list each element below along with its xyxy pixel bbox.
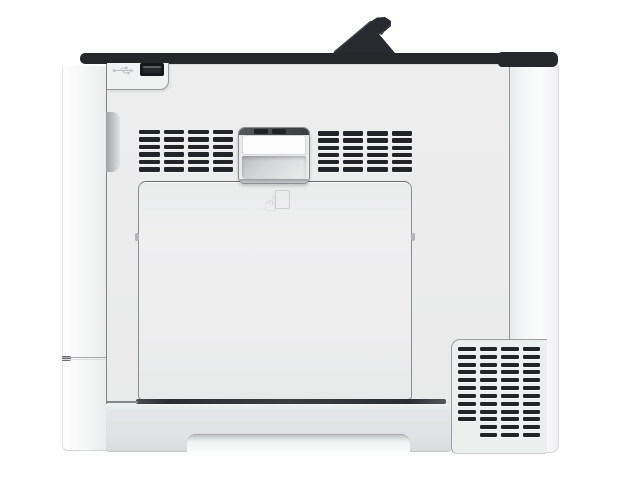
vent-slot	[188, 145, 209, 150]
vent-slot	[458, 378, 476, 382]
vent-slot	[523, 433, 541, 437]
vent-slot	[318, 131, 339, 136]
paper-stopper	[325, 12, 405, 57]
vent-slot	[523, 355, 541, 359]
usb-port-opening	[143, 66, 161, 73]
icon-door-outline	[275, 190, 290, 209]
handle-recess	[242, 156, 306, 179]
vent-slot	[458, 370, 476, 374]
vent-slot	[367, 138, 388, 143]
vent-slot	[501, 394, 519, 398]
vent-slot	[213, 152, 234, 157]
printer-product-photo: ☝	[0, 0, 640, 480]
vent-slot	[501, 378, 519, 382]
vent-slot	[164, 152, 185, 157]
vent-slot	[188, 167, 209, 172]
handle-lip	[240, 179, 308, 183]
vent-slot	[213, 130, 234, 135]
vent-slot	[213, 167, 234, 172]
vent-slot	[188, 152, 209, 157]
vent-slot	[458, 363, 476, 367]
vent-slot	[343, 160, 364, 165]
vent-slot	[392, 138, 413, 143]
vent-slot	[501, 433, 519, 437]
vent-slot	[164, 160, 185, 165]
door-grip-tab	[106, 112, 120, 172]
vent-slot	[501, 402, 519, 406]
vent-grille-top-right	[318, 130, 412, 173]
vent-slot	[188, 137, 209, 142]
vent-slot	[523, 370, 541, 374]
vent-slot	[480, 410, 498, 414]
door-bottom-seam-left	[106, 401, 138, 403]
left-panel-seam	[62, 356, 106, 361]
vent-slot	[139, 137, 160, 142]
vent-slot	[501, 417, 519, 421]
usb-port	[140, 63, 164, 76]
vent-slot	[501, 355, 519, 359]
vent-slot	[164, 167, 185, 172]
vent-slot	[318, 146, 339, 151]
vent-slot	[458, 386, 476, 390]
paper-drawer-grip	[187, 434, 410, 452]
vent-slot	[343, 146, 364, 151]
vent-slot	[343, 138, 364, 143]
vent-slot	[343, 153, 364, 158]
vent-slot	[523, 417, 541, 421]
door-hinge-left	[135, 233, 139, 241]
vent-slot	[139, 167, 160, 172]
vent-slot	[458, 417, 476, 421]
vent-slot	[480, 417, 498, 421]
right-body-seam	[509, 63, 510, 340]
vent-slot	[139, 130, 160, 135]
vent-slot	[164, 145, 185, 150]
vent-slot	[501, 410, 519, 414]
vent-slot	[501, 363, 519, 367]
vent-slot	[523, 363, 541, 367]
handle-latch-left	[254, 129, 268, 134]
vent-slot	[318, 153, 339, 158]
vent-slot	[188, 130, 209, 135]
vent-slot	[480, 363, 498, 367]
push-open-hand-icon: ☝	[265, 190, 293, 220]
vent-slot	[367, 146, 388, 151]
door-pull-handle	[238, 127, 310, 184]
vent-slot	[139, 160, 160, 165]
vent-slot	[213, 145, 234, 150]
vent-slot	[164, 130, 185, 135]
icon-hand-glyph: ☝	[264, 194, 277, 215]
door-hinge-right	[411, 233, 415, 241]
seam-highlight	[62, 359, 106, 360]
vent-slot	[458, 410, 476, 414]
vent-slot	[523, 402, 541, 406]
vent-slot	[367, 167, 388, 172]
vent-slot	[458, 402, 476, 406]
vent-slot	[480, 394, 498, 398]
vent-slot	[523, 410, 541, 414]
vent-slot	[213, 137, 234, 142]
vent-slot	[480, 378, 498, 382]
vent-grille-bottom-right	[458, 345, 540, 439]
vent-slot	[318, 167, 339, 172]
vent-slot	[523, 347, 541, 351]
vent-slot	[480, 433, 498, 437]
handle-face	[242, 135, 306, 155]
handle-latch-right	[272, 129, 286, 134]
vent-slot	[367, 131, 388, 136]
vent-slot	[188, 160, 209, 165]
vent-slot	[392, 160, 413, 165]
left-side-panel	[62, 66, 107, 451]
vent-slot	[480, 370, 498, 374]
vent-slot	[139, 145, 160, 150]
vent-slot	[367, 153, 388, 158]
vent-slot	[213, 160, 234, 165]
seam-line	[62, 357, 106, 358]
vent-slot	[343, 167, 364, 172]
vent-slot	[480, 402, 498, 406]
vent-slot	[392, 146, 413, 151]
vent-slot	[501, 370, 519, 374]
vent-slot	[318, 138, 339, 143]
vent-slot	[480, 347, 498, 351]
vent-grille-top-left	[139, 128, 233, 173]
vent-slot	[139, 152, 160, 157]
vent-slot	[458, 355, 476, 359]
vent-slot	[480, 355, 498, 359]
vent-slot	[501, 425, 519, 429]
vent-slot	[480, 425, 498, 429]
vent-slot	[318, 160, 339, 165]
vent-slot	[523, 386, 541, 390]
vent-slot	[523, 394, 541, 398]
vent-slot	[458, 394, 476, 398]
vent-slot	[392, 131, 413, 136]
vent-slot	[501, 347, 519, 351]
vent-slot	[343, 131, 364, 136]
vent-slot	[392, 153, 413, 158]
vent-slot	[367, 160, 388, 165]
vent-slot	[458, 347, 476, 351]
top-edge-bar-right-cap	[498, 52, 558, 67]
usb-icon	[112, 65, 136, 76]
vent-slot	[523, 425, 541, 429]
vent-slot	[501, 386, 519, 390]
vent-slot	[392, 167, 413, 172]
vent-slot	[523, 378, 541, 382]
vent-slot	[164, 137, 185, 142]
vent-slot	[480, 386, 498, 390]
